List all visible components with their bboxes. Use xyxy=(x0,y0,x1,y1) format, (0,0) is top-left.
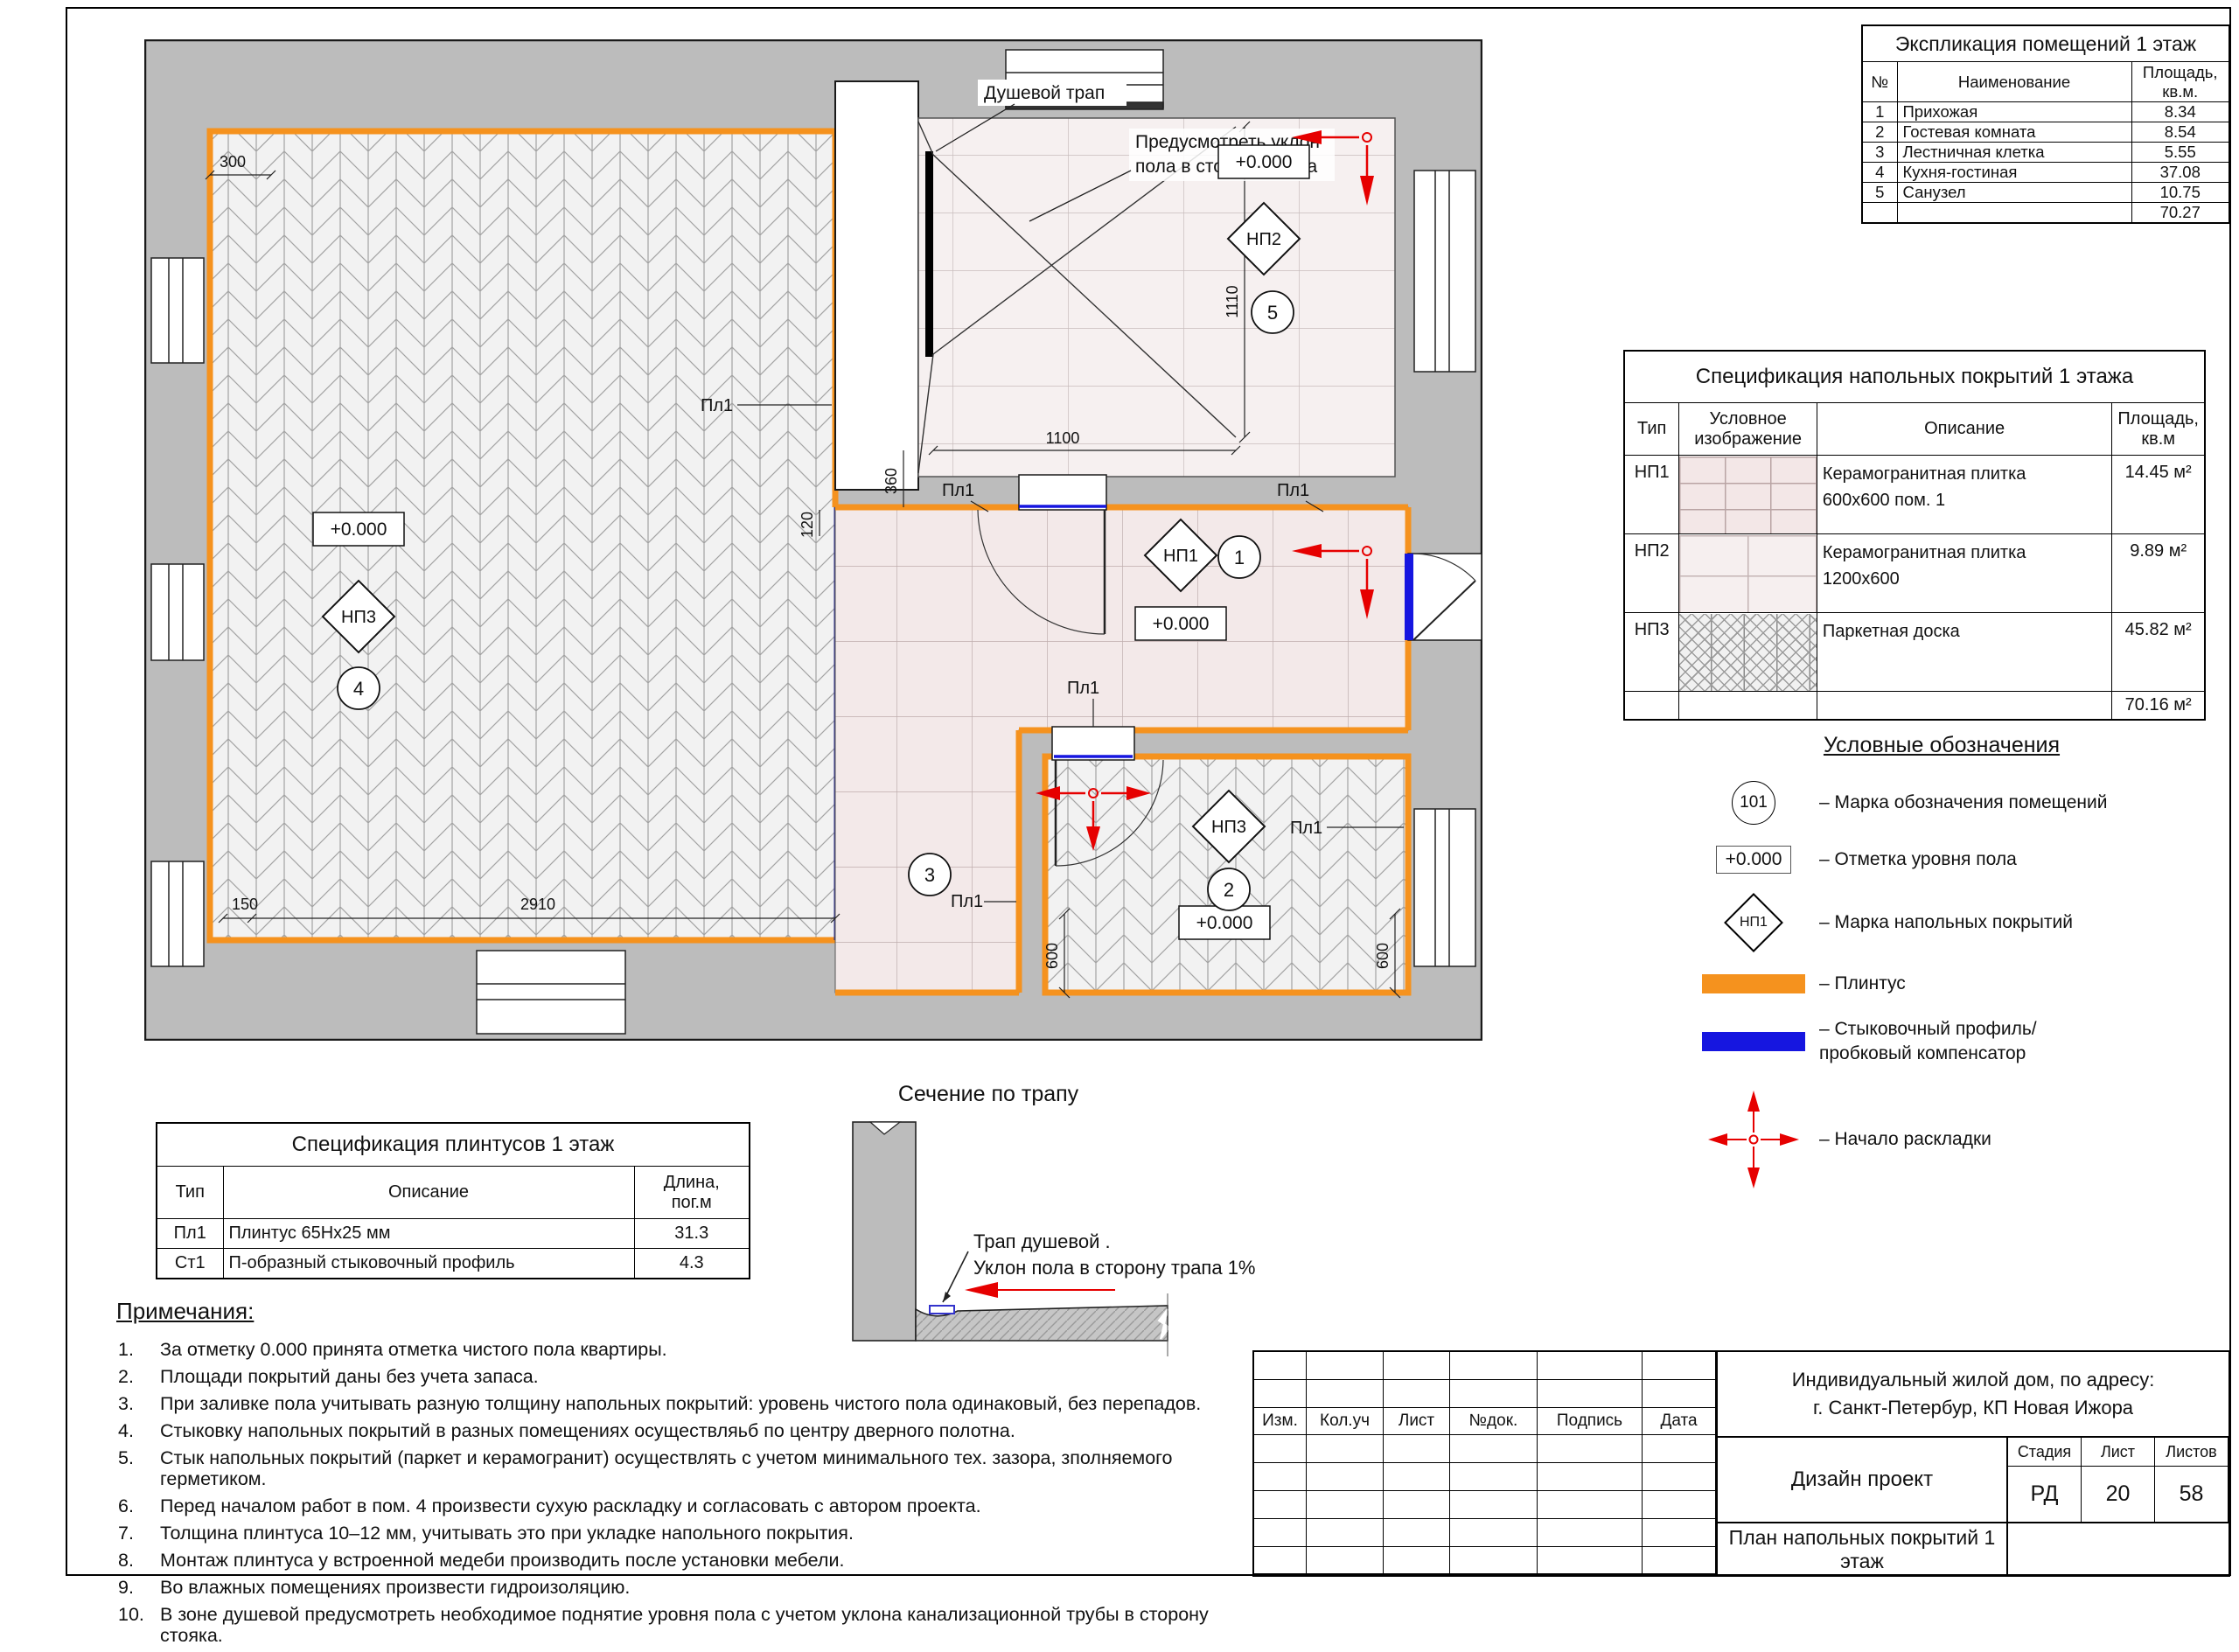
floor-spec-title: Спецификация напольных покрытий 1 этажа xyxy=(1624,351,2205,403)
svg-text:Душевой трап: Душевой трап xyxy=(984,83,1105,103)
svg-text:Пл1: Пл1 xyxy=(1290,819,1322,838)
note-item: 6.Перед началом работ в пом. 4 произвест… xyxy=(116,1495,1253,1516)
table-row: НП3 Паркетная доска 45.82 м² xyxy=(1624,613,2205,692)
title-block-main: Индивидуальный жилой дом, по адресу: г. … xyxy=(1716,1352,2229,1575)
level-mark-guest: +0.000 xyxy=(1179,906,1270,939)
svg-text:Пл1: Пл1 xyxy=(1277,481,1309,500)
explication-table: Экспликация помещений 1 этаж № Наименова… xyxy=(1861,24,2230,224)
svg-text:Пл1: Пл1 xyxy=(1067,679,1099,698)
table-row: НП2 Керамогранитная плитка1200х600 9.89 … xyxy=(1624,534,2205,613)
np2-swatch xyxy=(1679,535,1816,612)
table-total-row: 70.27 xyxy=(1862,203,2229,224)
table-row: 1Прихожая8.34 xyxy=(1862,102,2229,122)
svg-text:+0.000: +0.000 xyxy=(1153,614,1210,634)
svg-text:+0.000: +0.000 xyxy=(1196,913,1253,933)
project-name: Дизайн проект xyxy=(1718,1438,2008,1522)
svg-text:НП2: НП2 xyxy=(1246,230,1281,249)
floor-plan: 300 1110 1100 150 2910 600 600 360 120 Д… xyxy=(144,39,1482,1041)
svg-text:НП3: НП3 xyxy=(1211,818,1246,837)
svg-text:120: 120 xyxy=(799,512,816,538)
profile-icon xyxy=(1702,1032,1805,1051)
title-block-empty-cell xyxy=(2008,1523,2229,1575)
layout-start-icon xyxy=(1705,1087,1802,1192)
note-item: 8.Монтаж плинтуса у встроенной медеби пр… xyxy=(116,1550,1253,1571)
project-address: Индивидуальный жилой дом, по адресу: г. … xyxy=(1718,1352,2229,1438)
legend-item-plinth: – Плинтус xyxy=(1688,972,2195,996)
legend: Условные обозначения 101 – Марка обознач… xyxy=(1688,733,2195,1213)
table-row: Ст1П-образный стыковочный профиль4.3 xyxy=(157,1249,750,1279)
room-mark-5: 5 xyxy=(1252,291,1294,333)
legend-title: Условные обозначения xyxy=(1688,733,2195,758)
legend-item-profile: – Стыковочный профиль/пробковый компенса… xyxy=(1688,1017,2195,1066)
room-mark-2: 2 xyxy=(1208,868,1250,910)
table-row: 5Санузел10.75 xyxy=(1862,183,2229,203)
level-mark-room4: +0.000 xyxy=(313,512,404,546)
plinth-icon xyxy=(1702,974,1805,993)
svg-text:300: 300 xyxy=(220,153,246,171)
legend-item-room-mark: 101 – Марка обозначения помещений xyxy=(1688,781,2195,825)
level-mark-hall: +0.000 xyxy=(1135,607,1226,640)
svg-text:+0.000: +0.000 xyxy=(331,519,387,540)
stage-value: РД xyxy=(2008,1467,2082,1522)
sheets-value: 58 xyxy=(2155,1467,2229,1522)
svg-text:2910: 2910 xyxy=(520,896,555,913)
svg-text:600: 600 xyxy=(1043,943,1061,969)
section-label-2: Уклон пола в сторону трапа 1% xyxy=(973,1257,1256,1279)
table-row: 3Лестничная клетка5.55 xyxy=(1862,143,2229,163)
table-row: 4Кухня-гостиная37.08 xyxy=(1862,163,2229,183)
legend-item-layout-start: – Начало раскладки xyxy=(1688,1087,2195,1192)
note-item: 10.В зоне душевой предусмотреть необходи… xyxy=(116,1604,1253,1646)
level-mark-icon: +0.000 xyxy=(1716,846,1792,874)
title-block: Изм.Кол.учЛист№док.ПодписьДата Индивидуа… xyxy=(1252,1350,2230,1577)
note-item: 5.Стык напольных покрытий (паркет и кера… xyxy=(116,1447,1253,1489)
section-title: Сечение по трапу xyxy=(898,1082,1079,1106)
sheet-value: 20 xyxy=(2082,1467,2155,1522)
table-row: 2Гостевая комната8.54 xyxy=(1862,122,2229,143)
svg-text:360: 360 xyxy=(882,468,900,494)
plinth-spec-title: Спецификация плинтусов 1 этаж xyxy=(157,1123,750,1167)
section-slope-arrow xyxy=(965,1282,1115,1298)
notes: Примечания: 1.За отметку 0.000 принята о… xyxy=(116,1298,1253,1652)
note-item: 7.Толщина плинтуса 10–12 мм, учитывать э… xyxy=(116,1523,1253,1544)
table-row: Пл1Плинтус 65Нх25 мм31.3 xyxy=(157,1219,750,1249)
plinth-spec-table: Спецификация плинтусов 1 этаж Тип Описан… xyxy=(156,1122,750,1279)
svg-text:НП1: НП1 xyxy=(1163,547,1198,566)
stair-void xyxy=(835,81,918,490)
np1-swatch xyxy=(1679,457,1816,533)
note-item: 2.Площади покрытий даны без учета запаса… xyxy=(116,1366,1253,1387)
stage-sheet-block: СтадияЛистЛистов РД2058 xyxy=(2008,1438,2229,1522)
svg-text:2: 2 xyxy=(1224,879,1234,901)
notes-title: Примечания: xyxy=(116,1298,1253,1325)
svg-text:Пл1: Пл1 xyxy=(951,892,983,911)
svg-text:НП3: НП3 xyxy=(341,608,376,627)
svg-text:Пл1: Пл1 xyxy=(701,396,733,415)
room-mark-1: 1 xyxy=(1218,536,1260,578)
level-mark-bathroom: +0.000 xyxy=(1218,145,1309,178)
svg-text:150: 150 xyxy=(232,896,258,913)
room-mark-icon: 101 xyxy=(1732,781,1775,825)
floor-mark-icon: НП1 xyxy=(1724,893,1783,952)
svg-text:1: 1 xyxy=(1234,547,1245,568)
note-item: 1.За отметку 0.000 принята отметка чисто… xyxy=(116,1339,1253,1360)
note-item: 9.Во влажных помещениях произвести гидро… xyxy=(116,1577,1253,1598)
svg-text:1100: 1100 xyxy=(1046,429,1080,447)
room-mark-3: 3 xyxy=(909,854,951,896)
svg-text:600: 600 xyxy=(1374,943,1392,969)
table-row: НП1 Керамогранитная плитка600х600 пом. 1… xyxy=(1624,456,2205,534)
legend-item-level-mark: +0.000 – Отметка уровня пола xyxy=(1688,846,2195,874)
note-item: 3.При заливке пола учитывать разную толщ… xyxy=(116,1393,1253,1414)
floor-spec-table: Спецификация напольных покрытий 1 этажа … xyxy=(1623,350,2206,721)
np3-swatch xyxy=(1679,614,1816,691)
svg-text:4: 4 xyxy=(353,678,364,700)
svg-text:5: 5 xyxy=(1267,302,1278,324)
section-label-1: Трап душевой . xyxy=(973,1230,1111,1252)
svg-text:Пл1: Пл1 xyxy=(942,481,974,500)
note-item: 4.Стыковку напольных покрытий в разных п… xyxy=(116,1420,1253,1441)
explication-title: Экспликация помещений 1 этаж xyxy=(1862,25,2229,62)
svg-text:1110: 1110 xyxy=(1224,285,1241,317)
title-block-revision-grid: Изм.Кол.учЛист№док.ПодписьДата xyxy=(1254,1352,1716,1575)
drawing-sheet: { "plan": { "pl1": "Пл1", "level": "+0.0… xyxy=(0,0,2239,1584)
legend-item-floor-mark: НП1 – Марка напольных покрытий xyxy=(1688,895,2195,951)
room-mark-4: 4 xyxy=(338,667,380,709)
drawing-title: План напольных покрытий 1 этаж xyxy=(1718,1523,2008,1575)
table-total-row: 70.16 м² xyxy=(1624,692,2205,720)
svg-text:3: 3 xyxy=(924,864,935,886)
room-kitchen-living xyxy=(210,131,835,940)
svg-text:+0.000: +0.000 xyxy=(1236,152,1293,172)
entrance-door xyxy=(1405,554,1482,640)
